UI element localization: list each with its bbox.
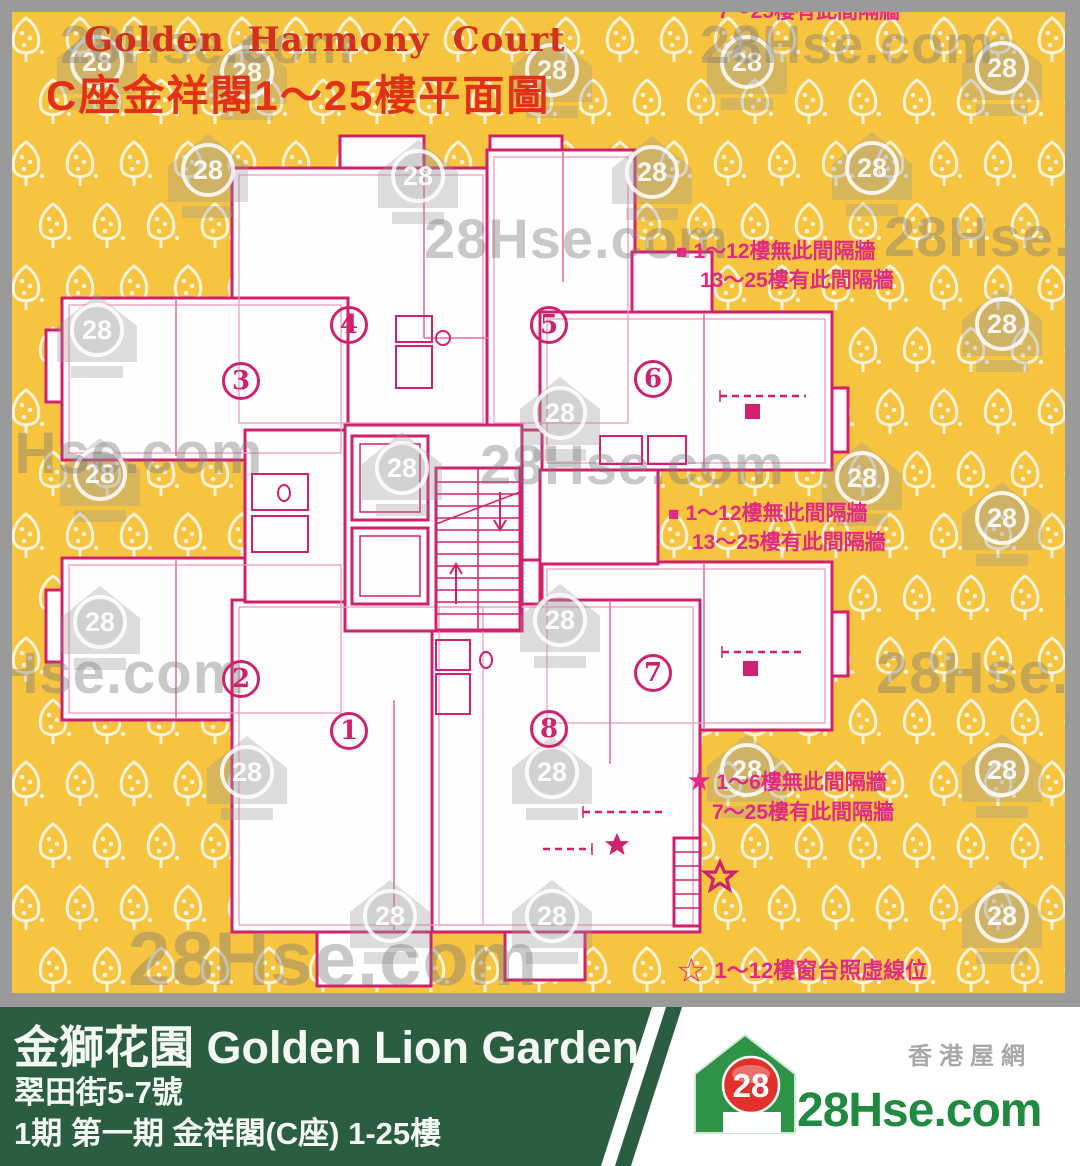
floor-plan-board: 28: [12, 12, 1065, 993]
floor-plan-drawing: 28: [12, 12, 1065, 993]
watermark-text: 28Hse.com: [480, 432, 785, 497]
watermark-text: 28Hse.com: [128, 916, 538, 993]
annotation-note-a: ■1～12樓無此間隔牆 13～25樓有此間隔牆: [676, 238, 894, 296]
estate-address: 翠田街5-7號: [14, 1067, 183, 1112]
watermark-text: 28Hse.com: [884, 204, 1065, 269]
unit-badge-8: 8: [530, 710, 568, 748]
footer-bar: 金獅花園 Golden Lion Garden 翠田街5-7號 1期 第一期 金…: [0, 1007, 1080, 1166]
outline-star-icon: ☆: [676, 948, 706, 993]
page: 28: [0, 0, 1080, 1166]
site-name-english: 28Hse.com: [797, 1084, 1041, 1137]
annotation-note-b: ■1～12樓無此間隔牆 13～25樓有此間隔牆: [668, 500, 886, 558]
28hse-logo: 28 28Hse.com: [660, 1007, 1080, 1166]
logo-badge-number: 28: [733, 1067, 770, 1104]
watermark-text: 28Hse.com: [876, 640, 1065, 707]
unit-badge-4: 4: [330, 306, 368, 344]
unit-badge-3: 3: [222, 362, 260, 400]
unit-badge-2: 2: [222, 660, 260, 698]
page-title-chinese: C座金祥閣1～25樓平面圖: [46, 62, 550, 123]
unit-badge-5: 5: [530, 306, 568, 344]
phase-info: 1期 第一期 金祥閣(C座) 1-25樓: [14, 1108, 441, 1153]
unit-badge-7: 7: [634, 654, 672, 692]
watermark-text: 28Hse.com: [12, 640, 245, 707]
annotation-note-c: ★1～6樓無此間隔牆 7～25樓有此間隔牆: [688, 764, 894, 827]
unit-badge-1: 1: [330, 712, 368, 750]
annotation-note-d: ☆ 1～12樓窗台照虛線位: [676, 948, 927, 993]
square-marker-icon: ■: [668, 504, 679, 525]
page-title-english: Golden Harmony Court: [84, 20, 566, 60]
watermark-text: 28Hse.com: [12, 420, 263, 487]
unit-badge-6: 6: [634, 360, 672, 398]
filled-star-icon: ★: [688, 767, 710, 795]
square-marker-icon: ■: [676, 242, 687, 263]
annotation-top-partial: 7～25樓有此間隔牆: [718, 12, 900, 27]
